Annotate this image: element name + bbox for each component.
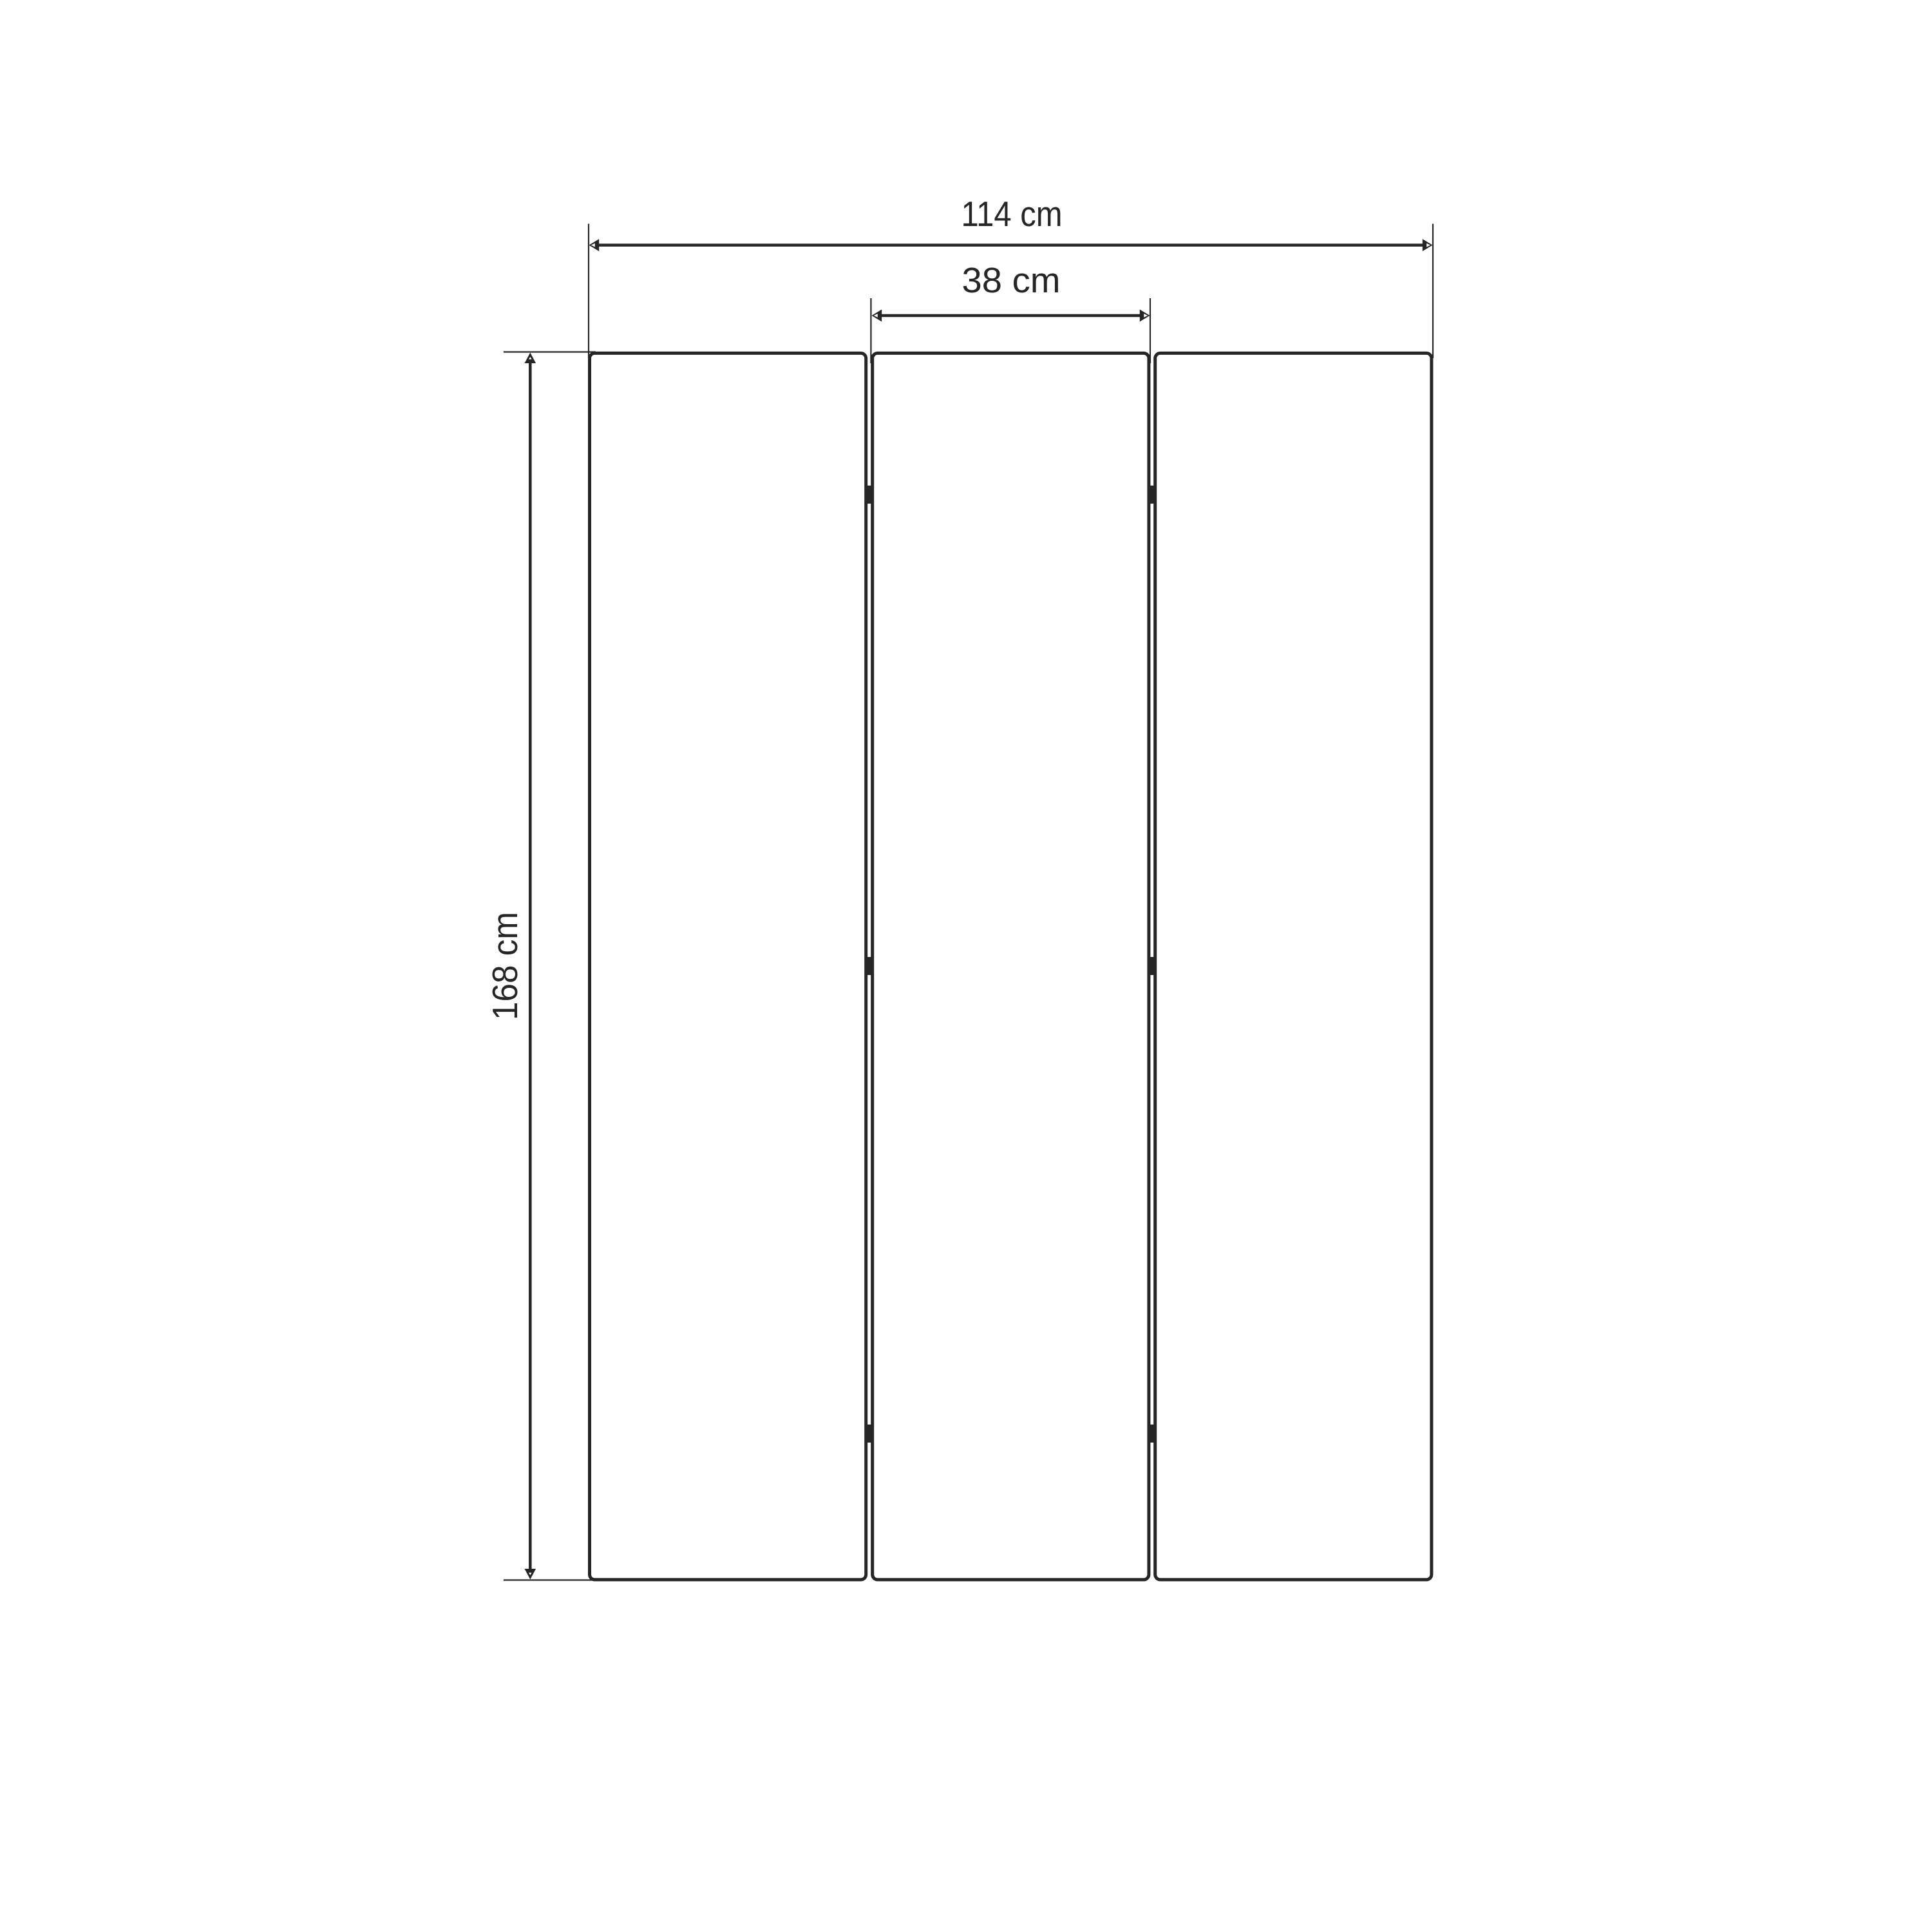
svg-text:38 cm: 38 cm bbox=[962, 260, 1061, 300]
svg-text:114 cm: 114 cm bbox=[961, 194, 1063, 234]
svg-text:168 cm: 168 cm bbox=[485, 912, 525, 1020]
